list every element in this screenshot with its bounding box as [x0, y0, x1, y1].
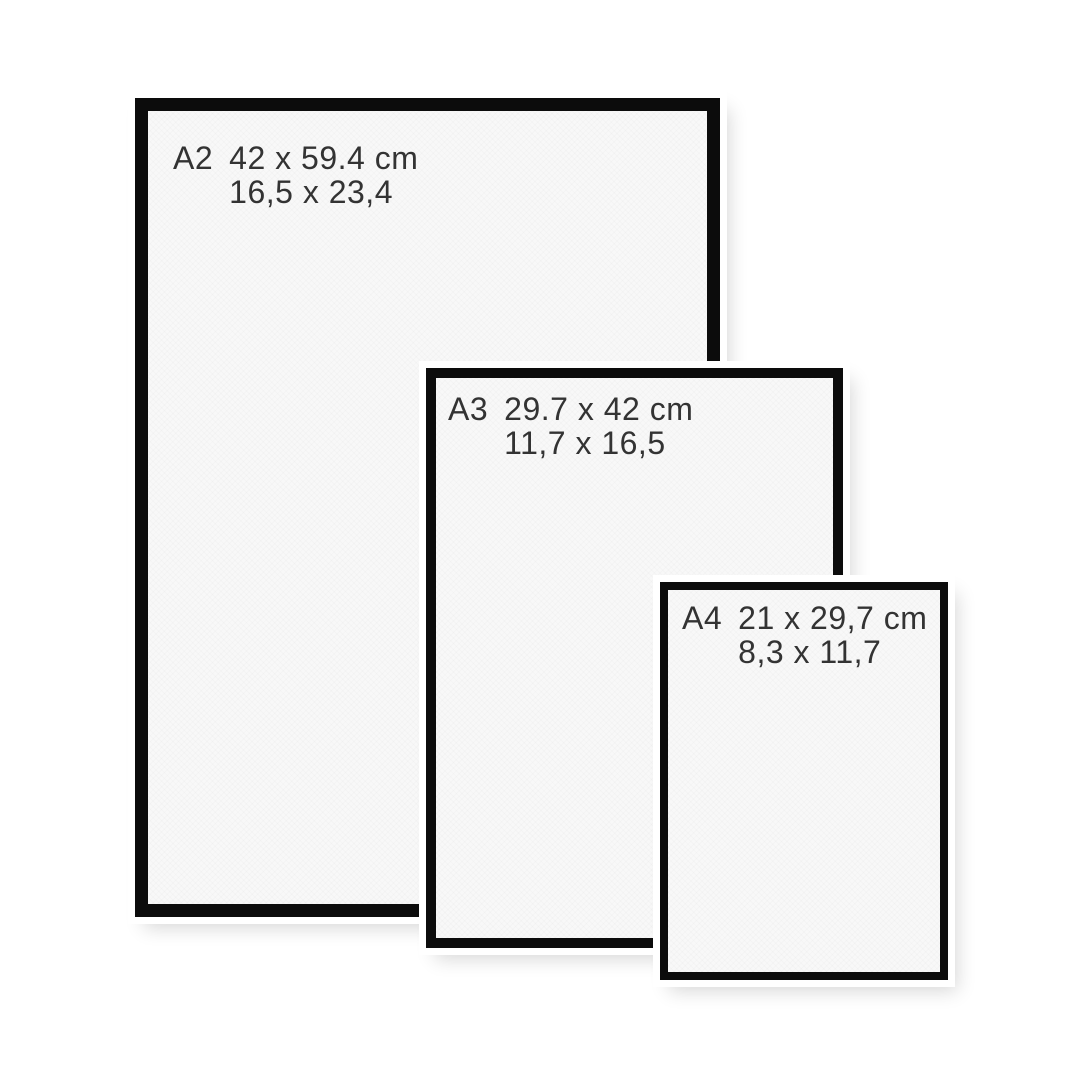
- a4-dims-cm: 21 x 29,7 cm: [738, 601, 927, 635]
- a4-size-label: A4: [682, 601, 722, 635]
- a4-frame: A4 21 x 29,7 cm 8,3 x 11,7: [660, 582, 948, 980]
- a3-dims-cm: 29.7 x 42 cm: [504, 392, 693, 426]
- a2-dims-inches: 16,5 x 23,4: [229, 175, 418, 209]
- a2-dims-cm: 42 x 59.4 cm: [229, 141, 418, 175]
- a2-label-row: A2 42 x 59.4 cm 16,5 x 23,4: [148, 111, 707, 209]
- size-comparison-diagram: A2 42 x 59.4 cm 16,5 x 23,4 A3 29.7 x 42…: [0, 0, 1080, 1080]
- a2-dimensions: 42 x 59.4 cm 16,5 x 23,4: [229, 141, 418, 209]
- a3-dims-inches: 11,7 x 16,5: [504, 426, 693, 460]
- a4-label-row: A4 21 x 29,7 cm 8,3 x 11,7: [668, 590, 940, 669]
- a3-size-label: A3: [448, 392, 488, 426]
- a3-label-row: A3 29.7 x 42 cm 11,7 x 16,5: [436, 378, 833, 460]
- a4-dimensions: 21 x 29,7 cm 8,3 x 11,7: [738, 601, 927, 669]
- a3-dimensions: 29.7 x 42 cm 11,7 x 16,5: [504, 392, 693, 460]
- a2-size-label: A2: [173, 141, 213, 175]
- a4-dims-inches: 8,3 x 11,7: [738, 635, 927, 669]
